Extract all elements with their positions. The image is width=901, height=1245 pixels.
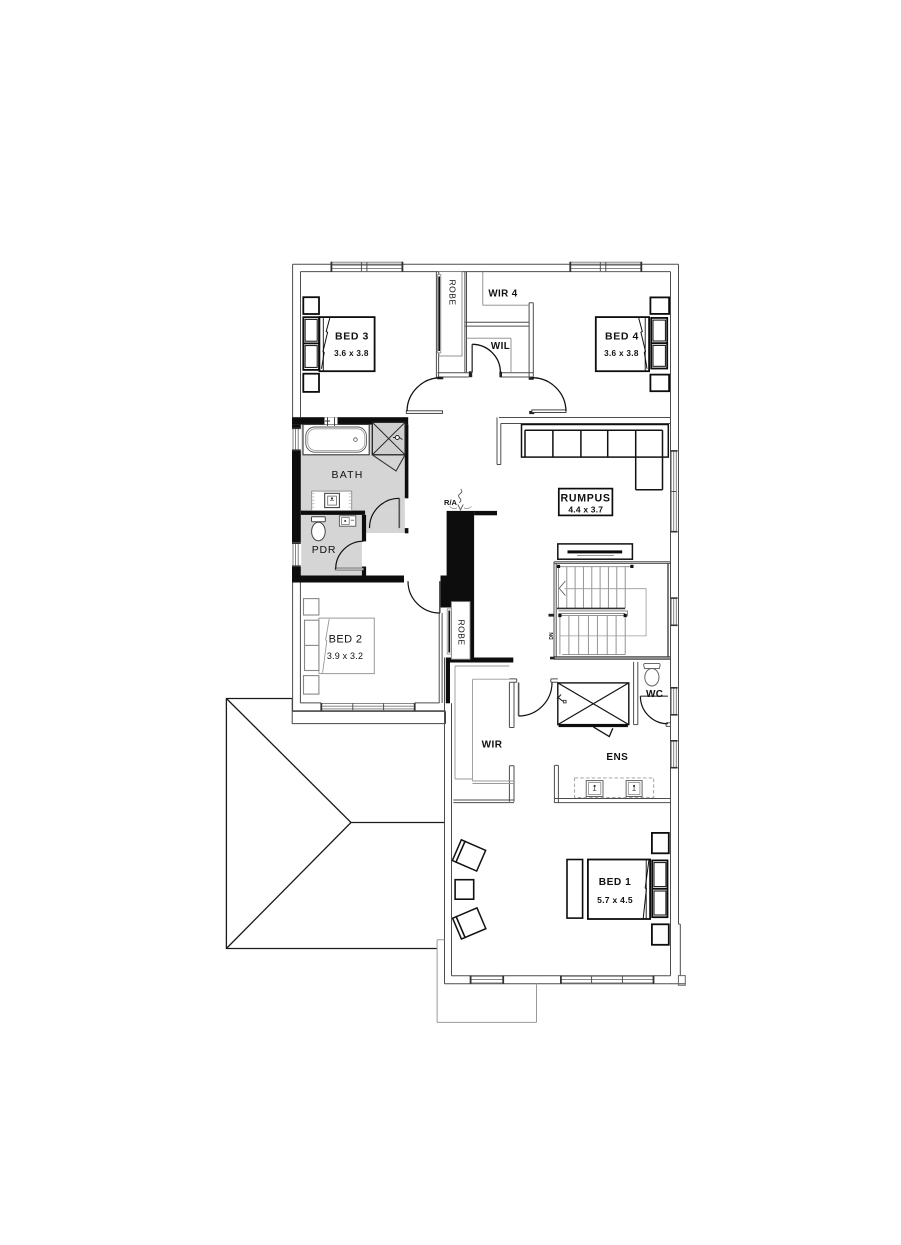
svg-text:3.9 x 3.2: 3.9 x 3.2 <box>327 651 363 661</box>
svg-text:R/A: R/A <box>444 498 458 507</box>
svg-text:WIL: WIL <box>491 341 510 352</box>
svg-text:4.4 x 3.7: 4.4 x 3.7 <box>568 505 603 515</box>
svg-text:ROBE: ROBE <box>447 279 457 305</box>
svg-text:3.6 x 3.8: 3.6 x 3.8 <box>334 349 369 358</box>
svg-text:3.6 x 3.8: 3.6 x 3.8 <box>604 349 639 358</box>
svg-text:WIR: WIR <box>482 740 503 751</box>
svg-text:WC: WC <box>646 689 663 700</box>
svg-text:BATH: BATH <box>331 469 363 481</box>
svg-text:ENS: ENS <box>606 752 628 763</box>
svg-text:BED 4: BED 4 <box>605 331 639 343</box>
svg-text:PDR: PDR <box>312 544 337 556</box>
svg-text:BED 2: BED 2 <box>329 634 363 646</box>
svg-text:DN: DN <box>549 632 555 640</box>
svg-text:BED 3: BED 3 <box>335 331 369 343</box>
svg-text:ROBE: ROBE <box>456 619 466 645</box>
svg-text:BED 1: BED 1 <box>599 877 632 888</box>
svg-text:WIR 4: WIR 4 <box>488 289 517 300</box>
svg-text:5.7 x 4.5: 5.7 x 4.5 <box>597 895 633 905</box>
svg-text:RUMPUS: RUMPUS <box>561 493 611 505</box>
